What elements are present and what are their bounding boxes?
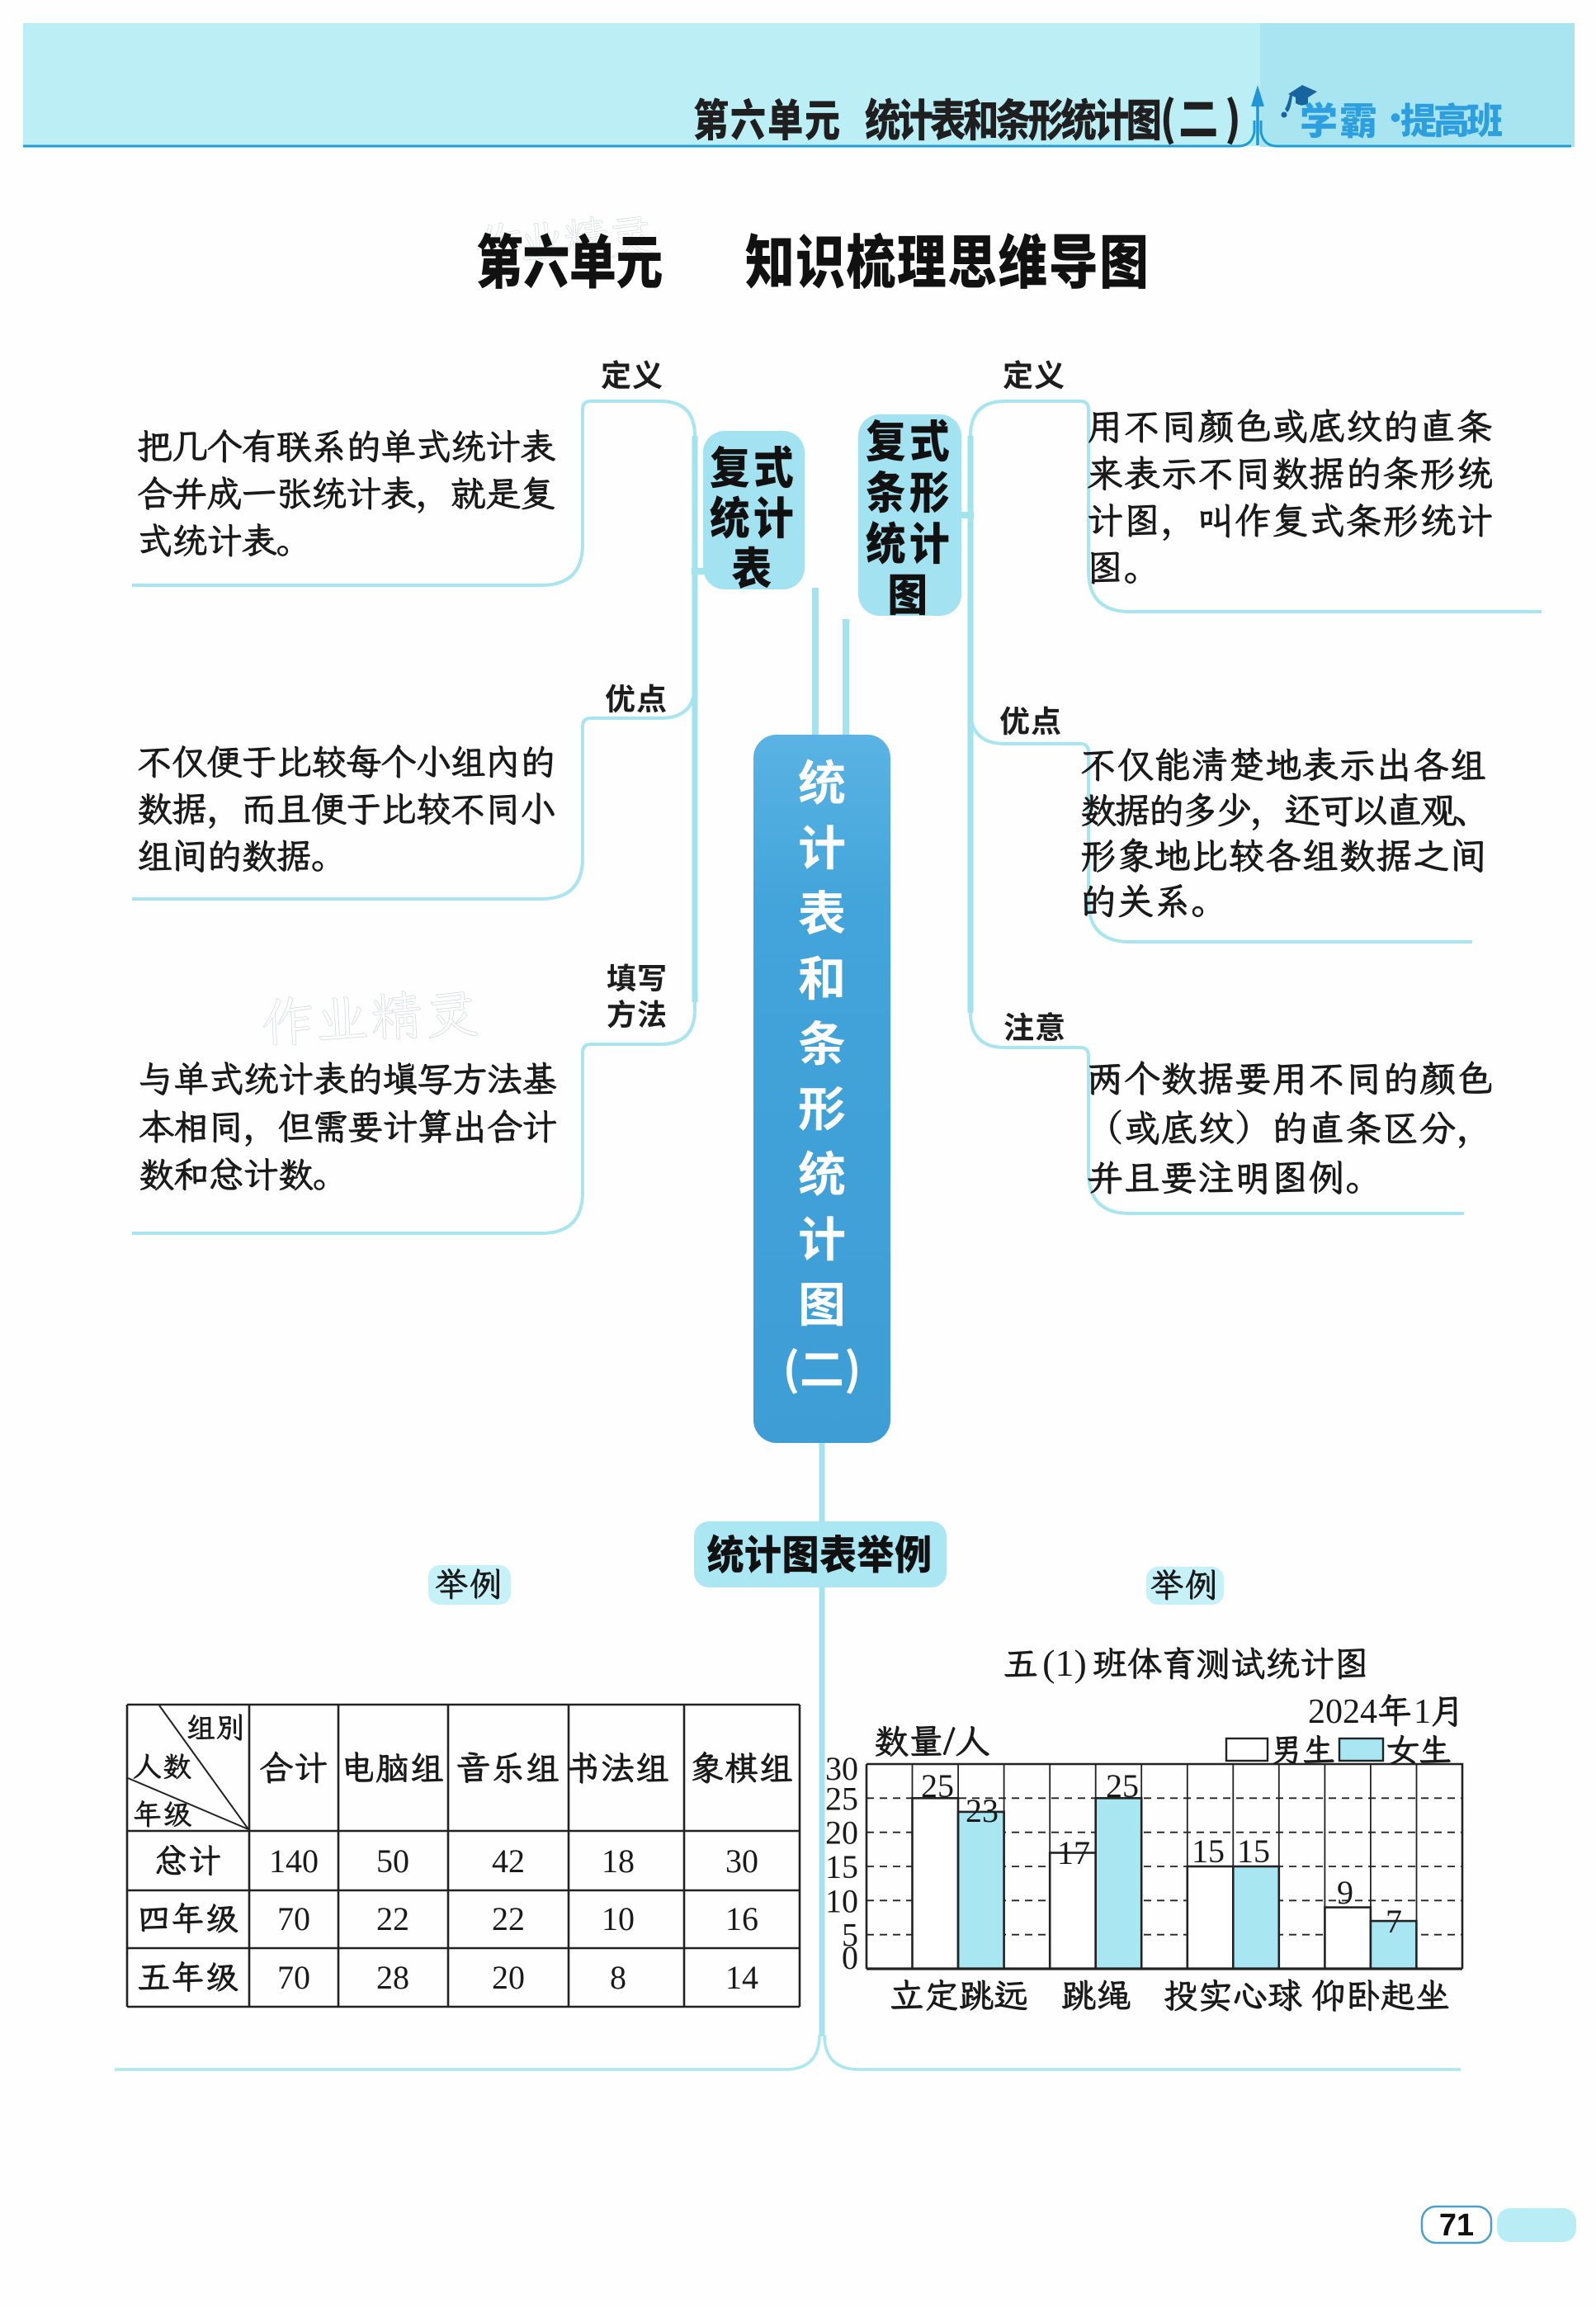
svg-text:28: 28 xyxy=(376,1959,409,1996)
svg-text:10: 10 xyxy=(825,1882,858,1919)
svg-text:23: 23 xyxy=(966,1792,999,1829)
svg-text:1: 1 xyxy=(1414,1693,1431,1731)
svg-text:71: 71 xyxy=(1439,2208,1474,2243)
svg-text:25: 25 xyxy=(921,1767,954,1805)
svg-text:15: 15 xyxy=(1192,1833,1225,1870)
svg-text:10: 10 xyxy=(602,1900,635,1937)
svg-text:70: 70 xyxy=(277,1959,310,1996)
svg-text:22: 22 xyxy=(376,1900,409,1937)
svg-text:2024: 2024 xyxy=(1308,1693,1377,1731)
svg-text:30: 30 xyxy=(825,1750,858,1787)
svg-text:9: 9 xyxy=(1337,1874,1353,1911)
svg-text:50: 50 xyxy=(376,1842,409,1880)
svg-text:22: 22 xyxy=(492,1900,525,1937)
svg-text:70: 70 xyxy=(277,1900,310,1937)
svg-text:7: 7 xyxy=(1386,1903,1402,1940)
svg-text:25: 25 xyxy=(1106,1767,1139,1805)
svg-text:30: 30 xyxy=(725,1842,758,1880)
svg-text:42: 42 xyxy=(492,1842,525,1880)
svg-text:5: 5 xyxy=(842,1917,858,1954)
svg-text:16: 16 xyxy=(725,1900,758,1937)
svg-text:15: 15 xyxy=(825,1848,858,1885)
svg-text:18: 18 xyxy=(602,1842,635,1880)
svg-text:20: 20 xyxy=(825,1814,858,1852)
svg-text:17: 17 xyxy=(1057,1834,1090,1871)
svg-text:20: 20 xyxy=(492,1959,525,1996)
svg-text:14: 14 xyxy=(725,1959,758,1996)
svg-text:(1): (1) xyxy=(1042,1642,1087,1684)
svg-text:15: 15 xyxy=(1237,1833,1270,1870)
svg-text:8: 8 xyxy=(610,1959,626,1996)
svg-text:140: 140 xyxy=(269,1842,319,1880)
